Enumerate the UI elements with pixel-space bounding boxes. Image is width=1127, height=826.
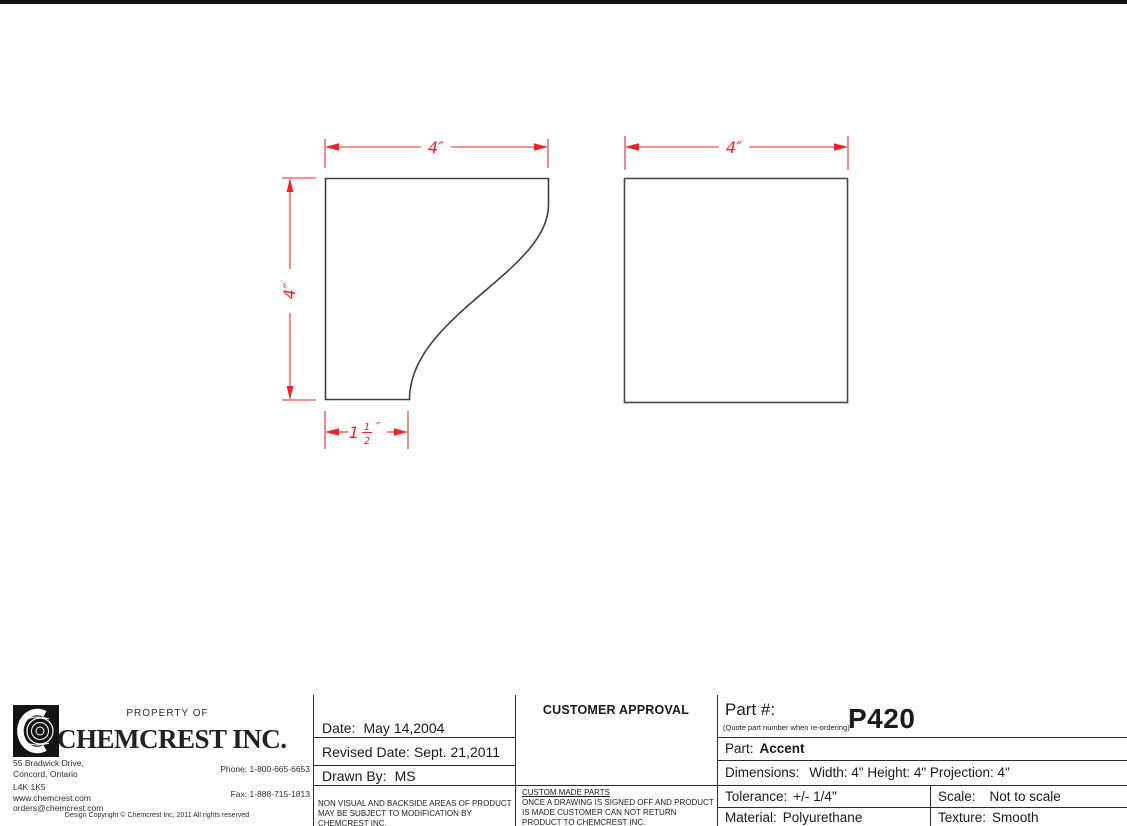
property-of-label: PROPERTY OF bbox=[95, 708, 240, 719]
texture-value: Smooth bbox=[992, 810, 1039, 825]
material-value: Polyurethane bbox=[783, 810, 863, 825]
custom-made-parts-body: ONCE A DRAWING IS SIGNED OFF AND PRODUCT… bbox=[522, 798, 714, 826]
dimensions-row: Dimensions:Width: 4" Height: 4" Projecti… bbox=[725, 765, 1010, 780]
chemcrest-logo-icon bbox=[13, 705, 59, 762]
profile-outline bbox=[326, 179, 549, 400]
face-outline bbox=[625, 179, 848, 403]
custom-made-parts-title: CUSTOM MADE PARTS bbox=[522, 788, 714, 798]
part-name-value: Accent bbox=[760, 741, 805, 756]
part-number-value: P420 bbox=[848, 703, 915, 735]
profile-width-label: 4″ bbox=[428, 138, 444, 157]
title-block-top-border bbox=[0, 0, 1127, 4]
dimensions-value: Width: 4" Height: 4" Projection: 4" bbox=[809, 765, 1009, 780]
divider bbox=[313, 785, 1127, 786]
tolerance-row: Tolerance:+/- 1/4" bbox=[725, 789, 837, 804]
material-label: Material: bbox=[725, 810, 777, 825]
divider bbox=[717, 760, 1127, 761]
revised-date-value: Sept. 21,2011 bbox=[414, 744, 500, 760]
scale-value: Not to scale bbox=[990, 789, 1061, 804]
revised-date-label: Revised Date: bbox=[322, 744, 410, 760]
divider bbox=[313, 765, 515, 766]
drawn-by-row: Drawn By:MS bbox=[322, 768, 416, 784]
arrowhead-icon bbox=[394, 428, 408, 436]
material-row: Material:Polyurethane bbox=[725, 810, 862, 825]
drawn-by-label: Drawn By: bbox=[322, 768, 387, 784]
customer-approval-header: CUSTOMER APPROVAL bbox=[515, 703, 717, 717]
fax-number: Fax: 1-888-715-1813 bbox=[190, 789, 310, 799]
address-line: Concord, Ontario bbox=[13, 769, 103, 780]
date-label: Date: bbox=[322, 720, 355, 736]
tolerance-label: Tolerance: bbox=[725, 789, 787, 804]
divider bbox=[717, 807, 1127, 808]
date-row: Date:May 14,2004 bbox=[322, 720, 444, 736]
arrowhead-icon bbox=[287, 178, 294, 192]
arrowhead-icon bbox=[287, 386, 294, 400]
phone-number: Phone: 1-800-665-6653 bbox=[190, 764, 310, 774]
dimensions-label: Dimensions: bbox=[725, 765, 799, 780]
bottom-width-numerator: 1 bbox=[364, 422, 370, 433]
divider bbox=[930, 785, 931, 826]
company-name: CHEMCREST INC. bbox=[57, 724, 287, 755]
part-name-row: Part:Accent bbox=[725, 741, 805, 756]
arrowhead-icon bbox=[625, 143, 639, 151]
address-line: L4K 1K5 bbox=[13, 782, 103, 793]
bottom-width-denominator: 2 bbox=[364, 436, 370, 447]
date-value: May 14,2004 bbox=[363, 720, 444, 736]
part-number-hint: (Quote part number when re-ordering) bbox=[723, 723, 850, 732]
divider bbox=[717, 737, 1127, 738]
copyright-notice: Design Copyright © Chemcrest Inc, 2011 A… bbox=[12, 812, 302, 819]
part-number-label: Part #: bbox=[725, 700, 775, 720]
custom-made-parts-note: CUSTOM MADE PARTS ONCE A DRAWING IS SIGN… bbox=[522, 788, 714, 826]
revised-date-row: Revised Date:Sept. 21,2011 bbox=[322, 744, 500, 760]
scale-row: Scale:Not to scale bbox=[938, 789, 1061, 804]
divider bbox=[313, 695, 314, 826]
address-line: 55 Bradwick Drive, bbox=[13, 758, 103, 769]
bottom-width-unit: ″ bbox=[376, 420, 381, 434]
website-link[interactable]: www.chemcrest.com bbox=[13, 793, 103, 804]
tolerance-value: +/- 1/4" bbox=[793, 789, 836, 804]
arrowhead-icon bbox=[534, 143, 548, 151]
arrowhead-icon bbox=[325, 428, 339, 436]
scale-label: Scale: bbox=[938, 789, 976, 804]
part-name-label: Part: bbox=[725, 741, 754, 756]
drawn-by-value: MS bbox=[395, 768, 416, 784]
face-width-label: 4″ bbox=[726, 138, 742, 157]
profile-height-label: 4″ bbox=[280, 283, 299, 299]
arrowhead-icon bbox=[325, 143, 339, 151]
texture-row: Texture:Smooth bbox=[938, 810, 1039, 825]
texture-label: Texture: bbox=[938, 810, 986, 825]
drawing-sheet: 4″ 4″ 1 1 2 ″ bbox=[0, 0, 1127, 826]
drawing-canvas: 4″ 4″ 1 1 2 ″ bbox=[0, 0, 1127, 690]
bottom-width-whole: 1 bbox=[349, 423, 359, 442]
arrowhead-icon bbox=[834, 143, 848, 151]
modification-note: NON VISUAL AND BACKSIDE AREAS OF PRODUCT… bbox=[318, 799, 514, 826]
divider bbox=[313, 737, 515, 738]
